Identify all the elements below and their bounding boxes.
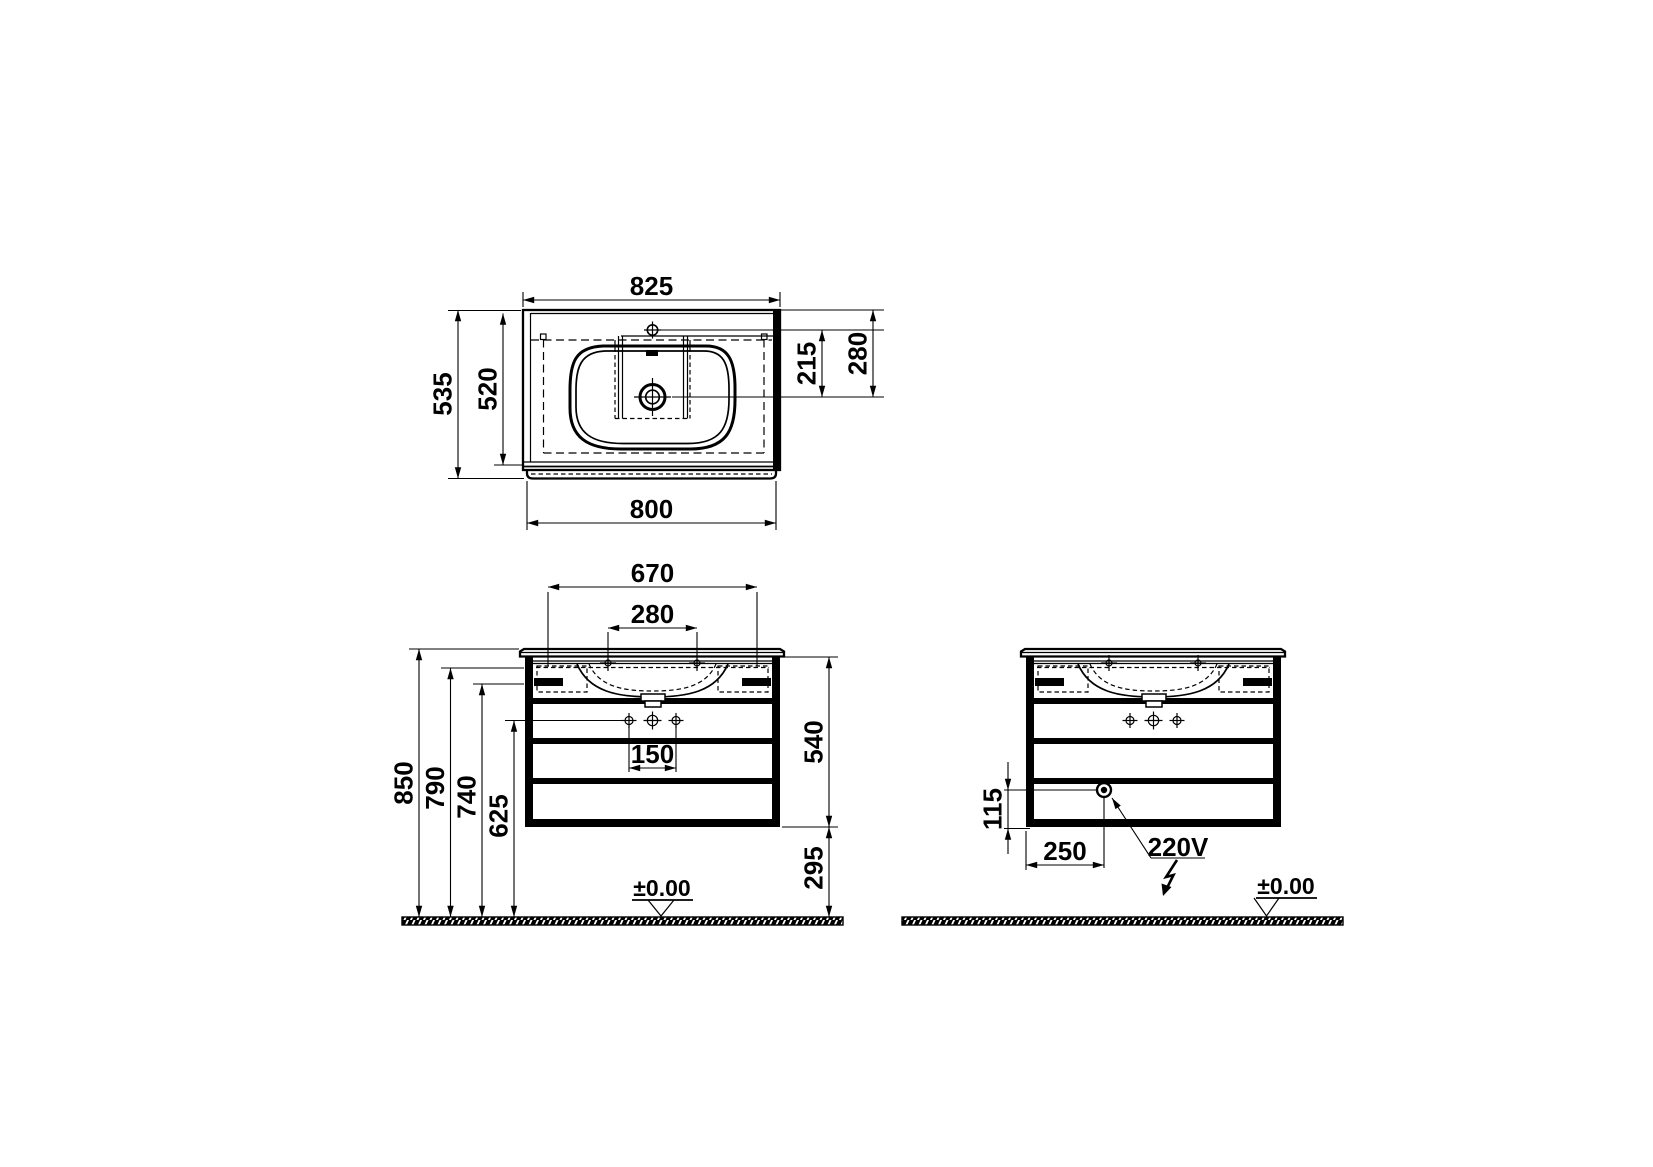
ground-level-label: ±0.00 bbox=[1257, 873, 1314, 899]
dim-label-800: 800 bbox=[630, 494, 673, 524]
technical-drawing: 825 535 520 215 280 800 bbox=[0, 0, 1653, 1167]
dim-label-115: 115 bbox=[978, 788, 1008, 830]
dim-label-740: 740 bbox=[452, 775, 482, 818]
dim-label-825: 825 bbox=[630, 271, 673, 301]
vanity-cabinet-electrical bbox=[1021, 649, 1285, 827]
dim-handle-spacing: 150 bbox=[629, 726, 676, 772]
ground-line bbox=[902, 917, 1343, 925]
lightning-bolt-icon bbox=[1162, 860, 1178, 896]
dim-label-850: 850 bbox=[389, 761, 419, 804]
dim-socket-height: 115 bbox=[978, 762, 1009, 854]
voltage-callout: 220V bbox=[1112, 798, 1209, 896]
drain bbox=[634, 378, 671, 416]
dim-bottom-width: 800 bbox=[527, 481, 776, 530]
level-marker-icon bbox=[648, 900, 674, 916]
dim-label-535: 535 bbox=[428, 372, 458, 415]
dim-top-width: 825 bbox=[523, 271, 780, 307]
vanity-cabinet-front bbox=[520, 649, 784, 827]
dim-label-280-plan: 280 bbox=[843, 332, 873, 375]
dim-tap-spacing: 280 bbox=[608, 599, 697, 656]
dim-floor-gap: 295 bbox=[799, 827, 830, 917]
power-outlet bbox=[1097, 783, 1111, 797]
dim-cabinet-height: 540 bbox=[782, 657, 838, 827]
dim-label-670: 670 bbox=[631, 558, 674, 588]
ground-line bbox=[402, 917, 843, 925]
dim-label-540: 540 bbox=[799, 720, 829, 763]
dim-label-520: 520 bbox=[473, 367, 503, 410]
dim-socket-offset: 250 bbox=[1026, 831, 1104, 870]
dim-label-280-front: 280 bbox=[631, 599, 674, 629]
dim-inner-depth: 520 bbox=[473, 314, 524, 466]
dim-label-250: 250 bbox=[1043, 836, 1086, 866]
dim-label-295: 295 bbox=[799, 846, 829, 889]
ground-level-label: ±0.00 bbox=[633, 875, 690, 901]
front-view: 670 280 150 850 790 7 bbox=[389, 558, 844, 925]
electrical-view: 115 250 220V ±0.00 bbox=[902, 649, 1343, 925]
dim-label-150: 150 bbox=[631, 739, 674, 769]
dim-label-790: 790 bbox=[420, 766, 450, 809]
plan-view: 825 535 520 215 280 800 bbox=[428, 271, 885, 530]
level-marker-icon bbox=[1254, 898, 1279, 916]
dim-tap-to-drain: 215 bbox=[792, 330, 823, 397]
drawing-canvas: 825 535 520 215 280 800 bbox=[0, 0, 1653, 1167]
overflow-slot bbox=[646, 350, 658, 356]
ground-level-electrical: ±0.00 bbox=[1254, 873, 1317, 916]
dim-edge-to-drain: 280 bbox=[843, 310, 874, 397]
dim-height-handles: 625 bbox=[484, 721, 624, 918]
ground-level-front: ±0.00 bbox=[632, 875, 693, 916]
dim-label-215: 215 bbox=[792, 342, 822, 385]
dim-label-625: 625 bbox=[484, 794, 514, 837]
